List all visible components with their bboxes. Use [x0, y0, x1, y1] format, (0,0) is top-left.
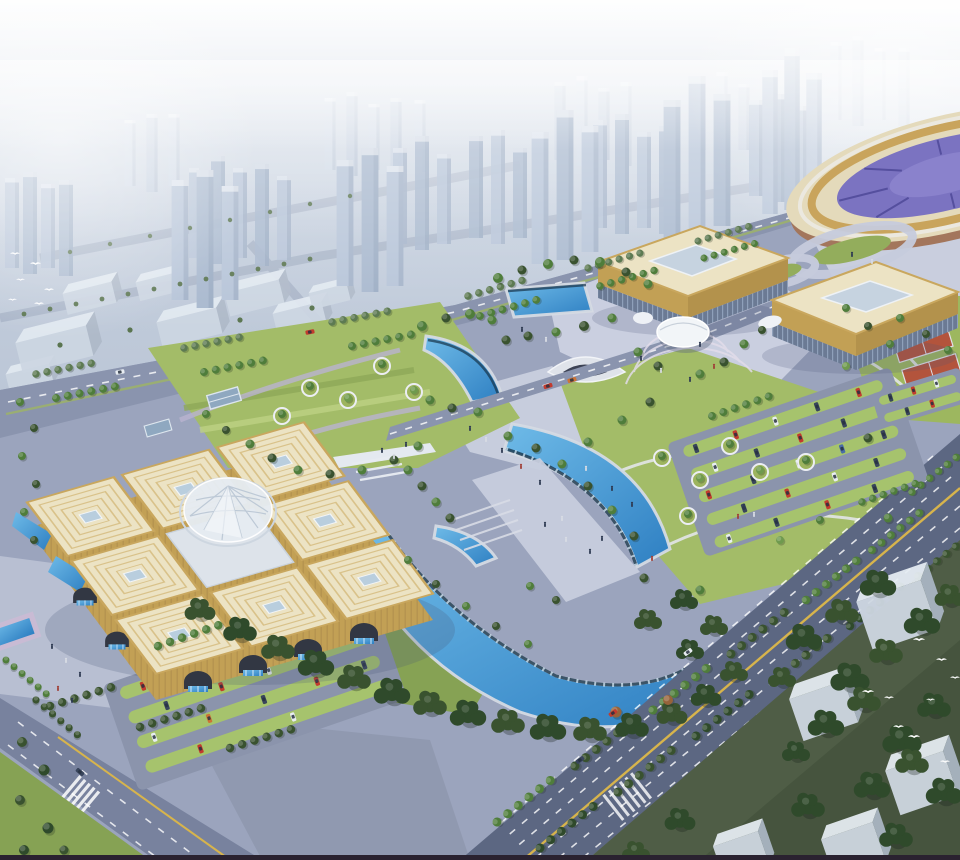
pedestrian	[699, 342, 701, 347]
pedestrian	[381, 448, 383, 453]
pedestrian	[521, 327, 523, 332]
pedestrian	[851, 252, 853, 257]
tree-planter	[680, 508, 696, 524]
tree-planter	[406, 384, 422, 400]
pedestrian	[640, 356, 642, 361]
tree-planter	[752, 464, 768, 480]
pedestrian	[601, 536, 603, 541]
pedestrian	[405, 442, 407, 447]
pedestrian	[65, 658, 67, 663]
facade-arch	[350, 623, 378, 644]
pedestrian	[469, 426, 471, 431]
pedestrian	[611, 486, 613, 491]
pedestrian	[651, 556, 653, 561]
canopy	[633, 312, 653, 324]
tree-planter	[374, 358, 390, 374]
pedestrian	[51, 644, 53, 649]
tree-planter	[722, 438, 738, 454]
tree-planter	[798, 454, 814, 470]
pedestrian	[393, 454, 395, 459]
tree-planter	[340, 392, 356, 408]
pedestrian	[57, 686, 59, 691]
pedestrian	[501, 448, 503, 453]
tree-planter	[302, 380, 318, 396]
pedestrian	[871, 259, 873, 264]
pedestrian	[79, 672, 81, 677]
glass-dome	[180, 478, 276, 546]
pedestrian	[565, 537, 567, 542]
pedestrian	[539, 480, 541, 485]
pedestrian	[743, 504, 745, 509]
pedestrian	[520, 464, 522, 469]
bottom-strip	[0, 855, 960, 860]
pedestrian	[544, 522, 546, 527]
pedestrian	[585, 466, 587, 471]
pedestrian	[71, 698, 73, 703]
tree-planter	[274, 408, 290, 424]
pedestrian	[545, 337, 547, 342]
pedestrian	[737, 514, 739, 519]
pedestrian	[589, 549, 591, 554]
facade-arch	[239, 655, 267, 676]
tree-planter	[692, 472, 708, 488]
pedestrian	[660, 368, 662, 373]
pedestrian	[753, 512, 755, 517]
aerial-rendering	[0, 0, 960, 860]
facade-arch	[184, 671, 212, 692]
tree-planter	[654, 450, 670, 466]
rect-pool	[506, 283, 592, 317]
rendering-canvas	[0, 0, 960, 860]
pedestrian	[561, 516, 563, 521]
pedestrian	[689, 377, 691, 382]
pedestrian	[631, 502, 633, 507]
pedestrian	[485, 437, 487, 442]
pedestrian	[713, 364, 715, 369]
